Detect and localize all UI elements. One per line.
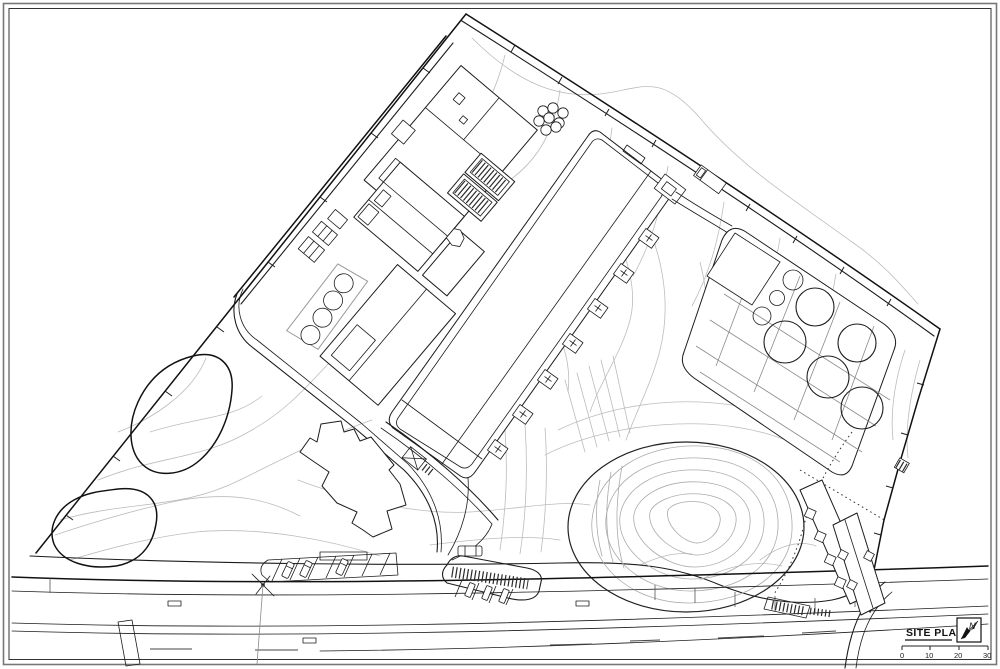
scale-0: 0: [900, 651, 904, 660]
scale-bar: 0 10 20 30: [900, 646, 991, 660]
truck: [694, 165, 727, 194]
parking-center: [443, 546, 542, 605]
earth-mound: [568, 442, 804, 612]
road-lane-line-2: [12, 606, 988, 626]
hatched-equipment: [424, 467, 433, 474]
parked-cars-west: [281, 558, 348, 578]
scale-10: 10: [925, 651, 933, 660]
car-in-drive: [458, 546, 482, 556]
tank-access-road-a: [676, 192, 732, 226]
road-lane-line-3: [12, 614, 988, 634]
boundary-marker-box: [894, 458, 909, 473]
admin-building: [300, 421, 406, 537]
scale-20: 20: [954, 651, 962, 660]
pond-lower: [52, 489, 157, 567]
parking-west: [261, 552, 398, 582]
parked-cars-center: [465, 582, 510, 603]
title-block: SITE PLAN N 0 10 20 30: [900, 618, 991, 660]
hatched-strip: [452, 572, 528, 584]
landscape-ponds: [52, 355, 232, 567]
small-digester-cluster: [534, 103, 568, 135]
mound-contours: [592, 446, 792, 603]
site-plan-sheet: SITE PLAN N 0 10 20 30: [0, 0, 1000, 669]
site-plan-drawing: SITE PLAN N 0 10 20 30: [0, 0, 1000, 669]
south-site-edge: [30, 556, 874, 602]
road-edge-south: [320, 624, 988, 651]
north-label: N: [969, 621, 976, 631]
drawing-title: SITE PLAN: [906, 627, 964, 639]
tank-farm: [672, 192, 896, 475]
tank-access-road-b: [672, 199, 728, 233]
north-arrow: N: [957, 618, 981, 642]
scale-30: 30: [983, 651, 991, 660]
